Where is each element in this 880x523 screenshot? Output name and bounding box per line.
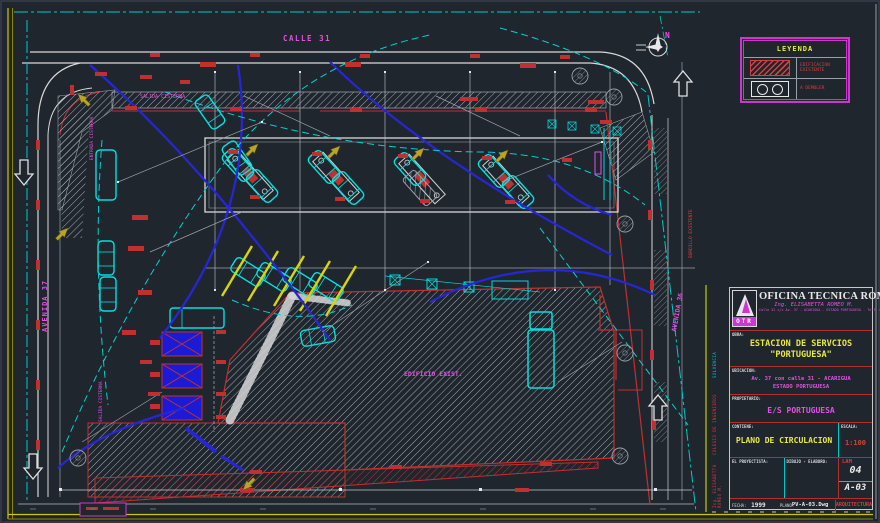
discipline: ARQUITECTURA bbox=[835, 500, 872, 511]
label-bordillo: BORDILLO EXISTENTE bbox=[688, 209, 694, 258]
fecha-value: 1999 bbox=[751, 502, 780, 509]
row-ubicacion: UBICACION: Av. 37 con calle 31 - ACARIGU… bbox=[730, 366, 872, 394]
logo-text: OTR bbox=[733, 317, 756, 326]
right-road bbox=[648, 16, 696, 512]
north-label: N bbox=[665, 31, 670, 40]
side-text-colegio: COLEGIO DE INGENIEROS bbox=[712, 385, 717, 455]
side-text-solvencia: SOLVENCIA bbox=[712, 330, 717, 378]
legend-box: LEYENDA EDIFICACION EXISTENTE A DEMOLER bbox=[740, 37, 850, 103]
road-label-avenida36: AVENIDA 36 bbox=[670, 292, 685, 332]
legend-inner: LEYENDA EDIFICACION EXISTENTE A DEMOLER bbox=[743, 40, 847, 100]
cad-sheet: { "sheet": { "road_top": "CALLE 31", "ro… bbox=[0, 0, 880, 523]
title-block-header: OTR OFICINA TECNICA ROMEO Ing. ELISABETT… bbox=[730, 288, 872, 330]
company-logo-icon: OTR bbox=[732, 290, 757, 327]
file-name: PV-A-03.Dwg bbox=[792, 502, 835, 508]
plano-label: PLANO: bbox=[780, 503, 792, 508]
building-hatch bbox=[88, 287, 642, 503]
sheet-number: A-03 bbox=[839, 481, 872, 499]
ubicacion-line1: Av. 37 con calle 31 - ACARIGUA bbox=[730, 375, 872, 383]
obra-line2: "PORTUGUESA" bbox=[730, 350, 872, 361]
escala-label: ESCALA: bbox=[841, 424, 858, 429]
legend-symbol-tanks bbox=[744, 79, 797, 99]
row-propietario: PROPIETARIO: E/S PORTUGUESA bbox=[730, 394, 872, 422]
contiene-label: CONTIENE: bbox=[732, 424, 754, 429]
traffic-arrow-icon bbox=[15, 160, 33, 185]
label-entrada-cisterna: ENTRADA CISTERNA bbox=[89, 116, 95, 160]
stamp-box bbox=[80, 503, 126, 516]
legend-item-label: EDIFICACION EXISTENTE bbox=[797, 58, 846, 78]
ubicacion-label: UBICACION: bbox=[732, 368, 756, 373]
legend-title: LEYENDA bbox=[744, 41, 846, 58]
legend-row: A DEMOLER bbox=[744, 79, 846, 99]
label-salida-cisterna: SALIDA CISTERNA bbox=[140, 94, 185, 100]
road-label-calle31: CALLE 31 bbox=[283, 34, 331, 43]
hatch-swatch-icon bbox=[750, 60, 790, 76]
obra-label: OBRA: bbox=[732, 332, 744, 337]
label-edificio: EDIFICIO EXIST. bbox=[404, 370, 463, 378]
company-address: Calle 31 c/c Av. 37 - ACARIGUA - ESTADO … bbox=[759, 308, 871, 312]
dibujo-label: DIBUJO - ELABORO: bbox=[787, 459, 828, 464]
tank-swatch-icon bbox=[751, 81, 789, 97]
row-obra: OBRA: ESTACION DE SERVCIOS "PORTUGUESA" bbox=[730, 330, 872, 366]
traffic-arrow-icon bbox=[674, 71, 692, 96]
row-bottom: FECHA: 1999 PLANO: PV-A-03.Dwg ARQUITECT… bbox=[730, 498, 872, 511]
label-salida-cisterna-2: SALIDA CISTERNA bbox=[98, 381, 104, 422]
proyectista-label: EL PROYECTISTA: bbox=[732, 459, 768, 464]
legend-symbol-hatch bbox=[744, 58, 797, 78]
road-label-avenida37: AVENIDA 37 bbox=[41, 280, 49, 332]
propietario-label: PROPIETARIO: bbox=[732, 396, 761, 401]
legend-row: EDIFICACION EXISTENTE bbox=[744, 58, 846, 79]
legend-item-label: A DEMOLER bbox=[797, 79, 846, 99]
side-text-engineer: Ing. ELISABETTA ROMEO M. bbox=[712, 460, 722, 508]
company-name: OFICINA TECNICA ROMEO bbox=[759, 290, 866, 302]
lam-label: LAM bbox=[839, 458, 872, 465]
title-block: OTR OFICINA TECNICA ROMEO Ing. ELISABETT… bbox=[729, 287, 873, 510]
row-signatures: EL PROYECTISTA: DIBUJO - ELABORO: LAM 04… bbox=[730, 457, 872, 498]
fuel-tanks bbox=[150, 330, 226, 420]
lam-number: 04 bbox=[839, 465, 872, 481]
ubicacion-line2: ESTADO PORTUGUESA bbox=[730, 383, 872, 391]
obra-line1: ESTACION DE SERVCIOS bbox=[730, 339, 872, 350]
row-contiene: CONTIENE: PLANO DE CIRCULACION ESCALA: 1… bbox=[730, 422, 872, 457]
fecha-label: FECHA: bbox=[730, 503, 751, 508]
